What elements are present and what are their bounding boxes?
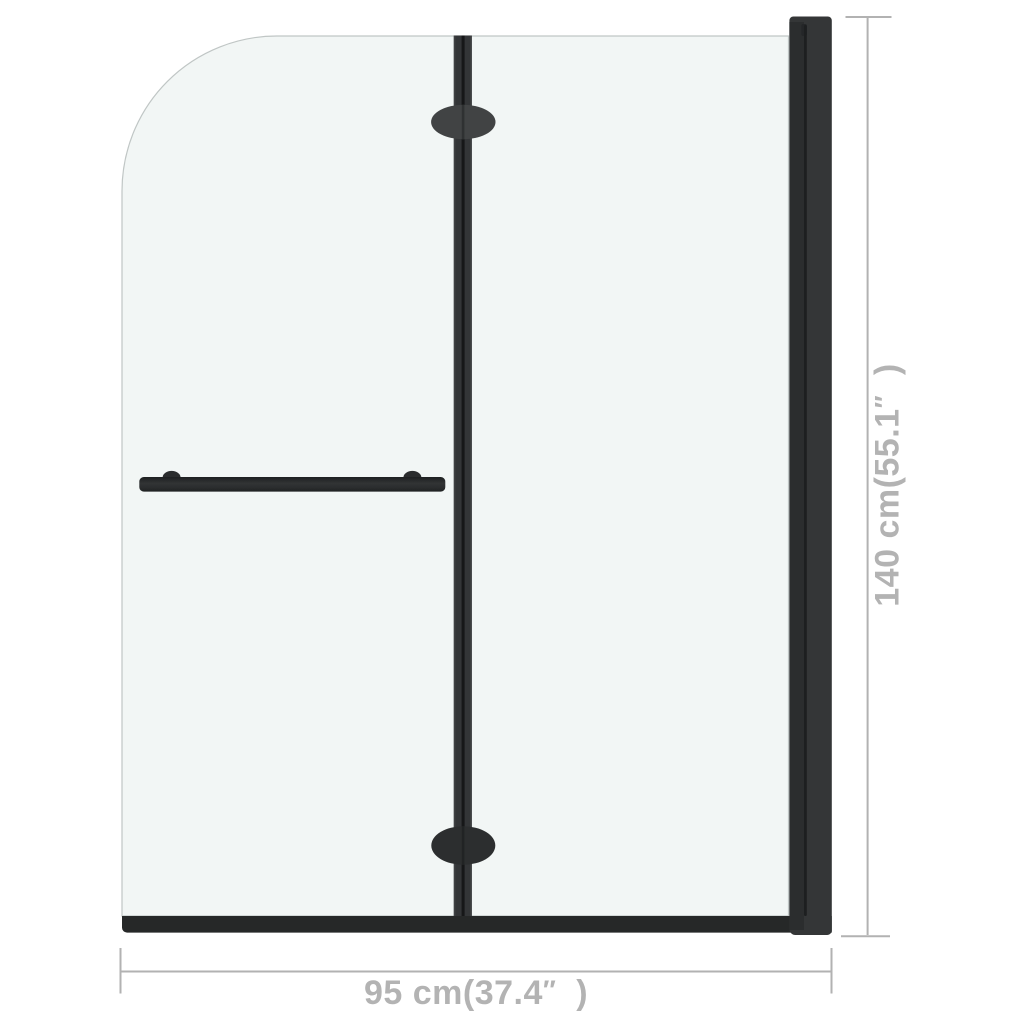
- svg-text:95 cm(37.4″ ): 95 cm(37.4″ ): [364, 974, 588, 1012]
- svg-text:140 cm(55.1″ ): 140 cm(55.1″ ): [869, 363, 907, 606]
